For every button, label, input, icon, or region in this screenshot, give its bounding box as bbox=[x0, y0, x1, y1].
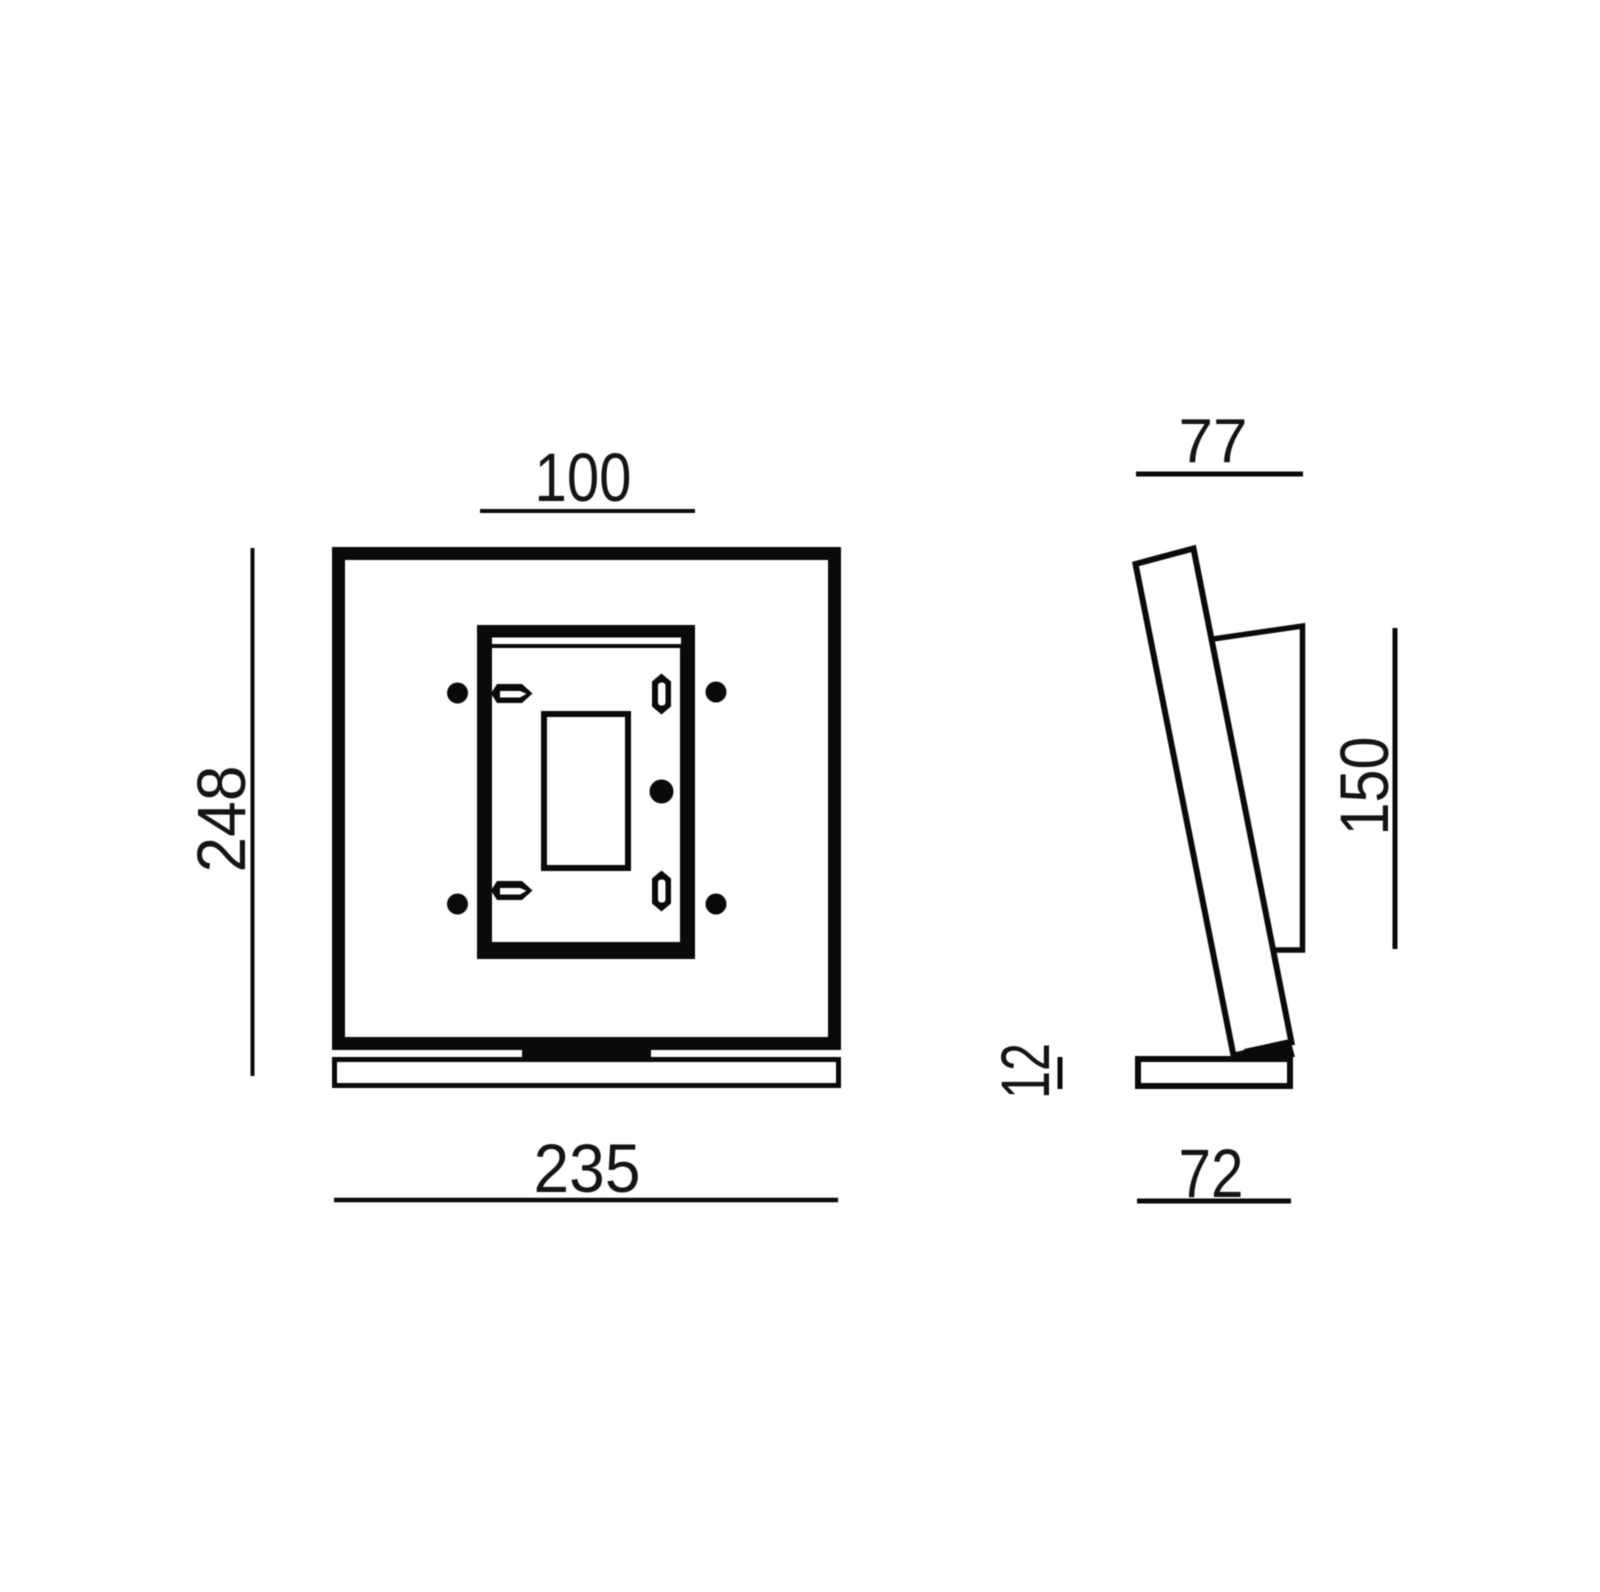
svg-text:72: 72 bbox=[1179, 1135, 1244, 1212]
svg-text:77: 77 bbox=[1179, 407, 1248, 476]
svg-text:12: 12 bbox=[987, 1043, 1064, 1099]
svg-text:248: 248 bbox=[183, 766, 260, 873]
svg-text:235: 235 bbox=[534, 1130, 641, 1207]
svg-text:150: 150 bbox=[1326, 737, 1403, 836]
svg-text:100: 100 bbox=[535, 439, 632, 516]
